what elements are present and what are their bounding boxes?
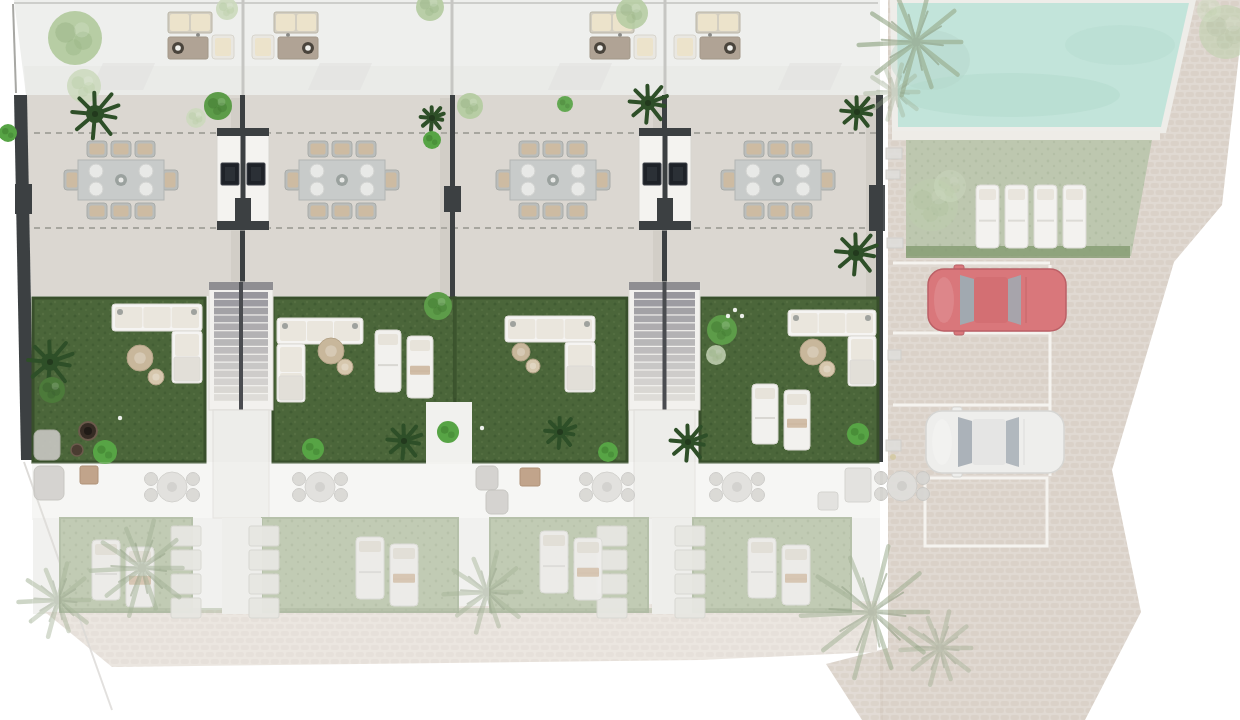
terrace-tree-1 [204,92,232,120]
garden-lounger-4b [784,390,810,450]
pouf-4b [819,361,835,377]
terrace-plant-4 [423,131,441,149]
garden-pot-1-inner [84,427,92,435]
garden-lounger-2b [407,336,433,398]
pouf-4a [800,339,826,365]
garden-tree-23 [424,292,452,320]
pouf-1b [148,369,164,385]
outdoor-kitchen-module-1 [217,128,269,230]
patio-plant [437,421,459,443]
lower-fade-veil [32,462,880,720]
garden-pot-2 [71,444,83,456]
terrace-plant-3 [421,107,444,130]
ghost-armchair-1 [34,430,60,460]
pouf-2b [337,359,353,375]
site-plan-canvas [0,0,1240,720]
flower-5 [480,426,484,430]
garden-lounger-2a [375,330,401,392]
wall-block-mid [444,186,461,212]
terrace-tree-3 [457,93,483,119]
site-plan-svg [0,0,1240,720]
right-fade-veil [883,0,1240,720]
roof-tree-1 [48,11,102,65]
terrace-plant-5 [557,96,573,112]
pouf-3b [526,359,540,373]
pouf-1a [127,345,153,371]
garden-tree-4a [707,315,737,345]
outdoor-kitchen-module-2 [639,128,691,230]
pouf-3a [512,343,530,361]
flower-3 [726,314,730,318]
garden-plant-2a [302,438,324,460]
garden-stairs-2 [629,282,700,410]
wall-block-left [15,184,32,214]
flower-1 [733,308,737,312]
wall-block-east [869,185,885,231]
garden-plant-4a [847,423,869,445]
garden-plant-1b [39,377,65,403]
garden-lounger-4a [752,384,778,444]
garden-tree-4b [706,345,726,365]
flower-2 [740,314,744,318]
garden-stairs-1 [209,282,273,410]
garden-plant-1c [93,440,117,464]
garden-plant-3b [598,442,618,462]
terrace-tree-2 [186,108,206,128]
flower-4 [118,416,122,420]
